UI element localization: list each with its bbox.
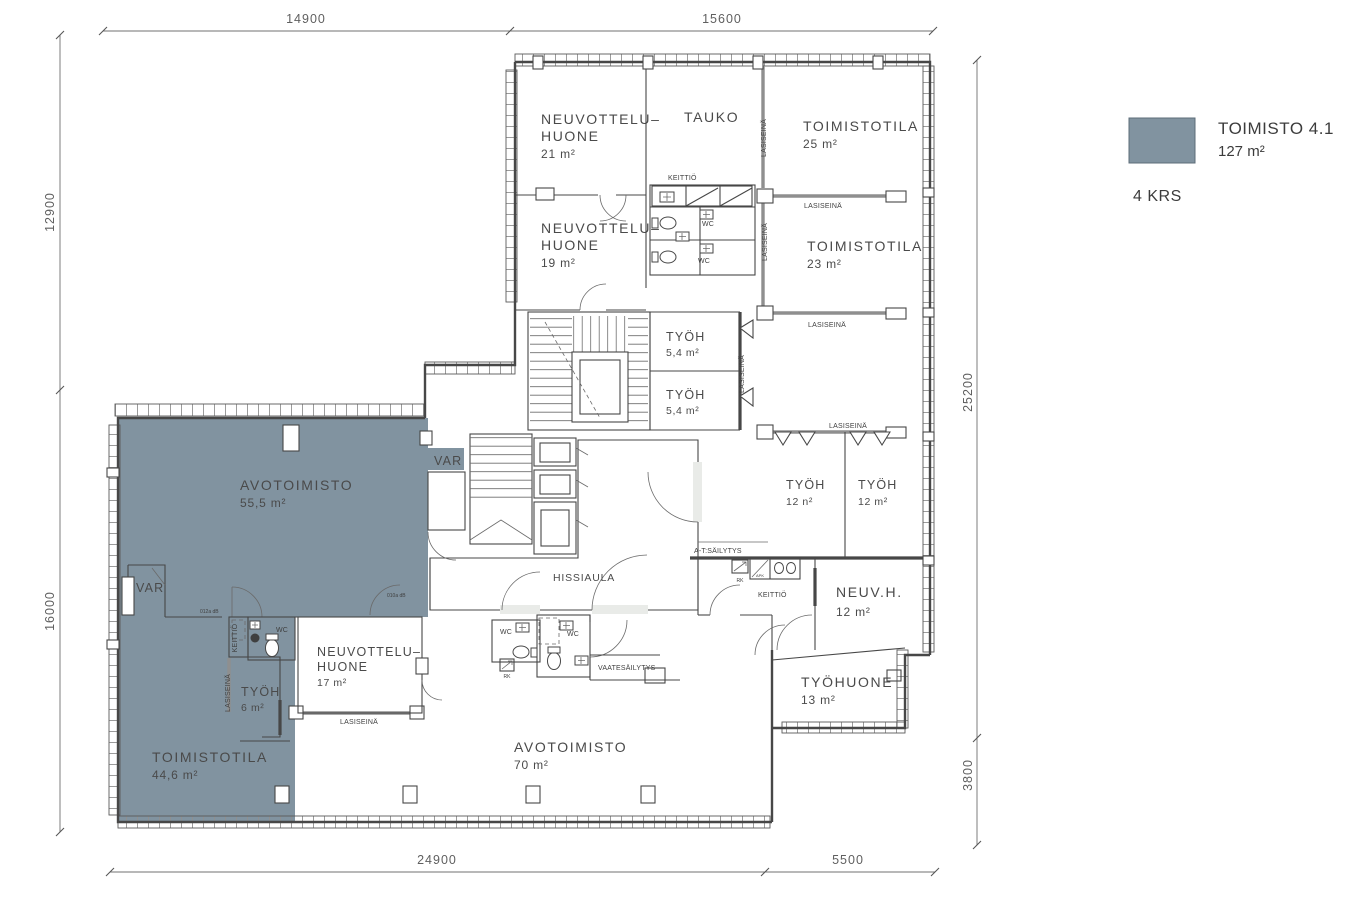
room-label-toimistotila-25: TOIMISTOTILA 25 m² bbox=[803, 118, 919, 151]
room-label-var-left: VAR bbox=[136, 581, 164, 595]
label-apk: APK bbox=[756, 573, 764, 578]
stairwell-upper bbox=[528, 312, 650, 430]
svg-text:25 m²: 25 m² bbox=[803, 137, 838, 151]
legend-swatch bbox=[1129, 118, 1195, 163]
svg-text:23 m²: 23 m² bbox=[807, 257, 842, 271]
svg-text:6 m²: 6 m² bbox=[241, 702, 264, 714]
room-label-var-right: VAR bbox=[434, 454, 462, 468]
label-lasiseina: LASISEINÄ bbox=[738, 355, 746, 393]
svg-text:13 m²: 13 m² bbox=[801, 693, 836, 707]
svg-text:44,6 m²: 44,6 m² bbox=[152, 768, 198, 782]
room-label-neuvottelu-19: NEUVOTTELU– HUONE 19 m² bbox=[541, 220, 661, 270]
room-name: HUONE bbox=[541, 128, 600, 144]
label-rk: RK bbox=[737, 578, 745, 584]
room-label-hissiaula: HISSIAULA bbox=[553, 572, 615, 584]
dim-top-left: 14900 bbox=[286, 12, 326, 26]
label-lasiseina: LASISEINÄ bbox=[804, 202, 842, 210]
label-keittio-right: KEITTIÖ bbox=[758, 591, 787, 599]
room-name: NEUVOTTELU– bbox=[541, 111, 661, 127]
room-label-tyohuone-13: TYÖHUONE 13 m² bbox=[801, 673, 893, 707]
svg-text:5,4 m²: 5,4 m² bbox=[666, 347, 699, 359]
dim-right-upper: 25200 bbox=[961, 372, 975, 412]
svg-text:17 m²: 17 m² bbox=[317, 677, 347, 689]
label-door-010a: 010a dB bbox=[387, 593, 406, 599]
dimension-left: 12900 16000 bbox=[43, 31, 64, 836]
room-area: 21 m² bbox=[541, 147, 576, 161]
svg-text:NEUV.H.: NEUV.H. bbox=[836, 584, 903, 600]
svg-text:5,4 m²: 5,4 m² bbox=[666, 405, 699, 417]
label-at-sailytys: A-T:SÄILYTYS bbox=[694, 547, 742, 555]
legend-floor: 4 KRS bbox=[1133, 188, 1182, 205]
svg-text:TYÖH: TYÖH bbox=[786, 478, 826, 492]
label-lasiseina: LASISEINÄ bbox=[340, 718, 378, 726]
floorplan-page: NEUVOTTELU– HUONE 21 m² TAUKO TOIMISTOTI… bbox=[0, 0, 1356, 917]
dim-right-lower: 3800 bbox=[961, 759, 975, 791]
room-label-neuv-h-12: NEUV.H. 12 m² bbox=[836, 584, 903, 619]
svg-text:TYÖHUONE: TYÖHUONE bbox=[801, 673, 893, 690]
dimension-top: 14900 15600 bbox=[99, 12, 937, 35]
wc-cluster-mid bbox=[492, 615, 680, 683]
label-wc: WC bbox=[698, 258, 710, 265]
label-wc: WC bbox=[500, 629, 512, 636]
room-label-tyoh-12-b: TYÖH 12 m² bbox=[858, 478, 898, 508]
label-wc: WC bbox=[567, 631, 579, 638]
label-lasiseina: LASISEINÄ bbox=[808, 321, 846, 329]
label-rk: RK bbox=[504, 674, 512, 680]
label-keittio-top: KEITTIÖ bbox=[668, 174, 697, 182]
room-label-avotoimisto-70: AVOTOIMISTO 70 m² bbox=[514, 739, 627, 772]
label-door-012a: 012a dB bbox=[200, 609, 219, 615]
svg-text:12 n²: 12 n² bbox=[786, 496, 813, 508]
floorplan-drawing: NEUVOTTELU– HUONE 21 m² TAUKO TOIMISTOTI… bbox=[0, 0, 1356, 917]
label-lasiseina: LASISEINÄ bbox=[761, 223, 769, 261]
svg-text:19 m²: 19 m² bbox=[541, 256, 576, 270]
elevator-core bbox=[470, 434, 588, 554]
room-label-tyoh-12-a: TYÖH 12 n² bbox=[786, 478, 826, 508]
svg-text:HUONE: HUONE bbox=[541, 237, 600, 253]
svg-text:AVOTOIMISTO: AVOTOIMISTO bbox=[514, 739, 627, 755]
dim-left-upper: 12900 bbox=[43, 192, 57, 232]
label-vaatesailytys: VAATESÄILYTYS bbox=[598, 664, 656, 672]
dim-top-right: 15600 bbox=[702, 12, 742, 26]
svg-text:70 m²: 70 m² bbox=[514, 758, 549, 772]
svg-text:TYÖH: TYÖH bbox=[858, 478, 898, 492]
svg-text:TOIMISTOTILA: TOIMISTOTILA bbox=[807, 238, 923, 254]
room-label-tyoh-54-a: TYÖH 5,4 m² bbox=[666, 330, 706, 359]
svg-text:AVOTOIMISTO: AVOTOIMISTO bbox=[240, 477, 353, 493]
label-lasiseina: LASISEINÄ bbox=[224, 674, 232, 712]
dimension-right: 25200 3800 bbox=[961, 56, 981, 849]
label-lasiseina: LASISEINÄ bbox=[760, 119, 768, 157]
svg-text:55,5 m²: 55,5 m² bbox=[240, 496, 286, 510]
svg-text:TYÖH: TYÖH bbox=[666, 330, 706, 344]
svg-text:NEUVOTTELU–: NEUVOTTELU– bbox=[317, 645, 421, 659]
svg-text:HUONE: HUONE bbox=[317, 660, 368, 674]
room-label-tauko: TAUKO bbox=[684, 109, 739, 125]
dimension-bottom: 24900 5500 bbox=[106, 853, 939, 876]
label-wc: WC bbox=[276, 627, 288, 634]
svg-text:TYÖH: TYÖH bbox=[666, 388, 706, 402]
legend-title: TOIMISTO 4.1 bbox=[1218, 119, 1334, 138]
dim-bottom-left: 24900 bbox=[417, 853, 457, 867]
legend: TOIMISTO 4.1 127 m² 4 KRS bbox=[1129, 118, 1334, 205]
svg-text:TOIMISTOTILA: TOIMISTOTILA bbox=[152, 749, 268, 765]
label-lasiseina: LASISEINÄ bbox=[829, 422, 867, 430]
room-label-tyoh-54-b: TYÖH 5,4 m² bbox=[666, 388, 706, 417]
svg-text:12 m²: 12 m² bbox=[858, 496, 888, 508]
label-keittio-left: KEITTIÖ bbox=[231, 623, 239, 652]
room-label-toimistotila-23: TOIMISTOTILA 23 m² bbox=[807, 238, 923, 271]
room-label-neuvottelu-21: NEUVOTTELU– HUONE 21 m² bbox=[541, 111, 661, 161]
svg-text:TYÖH: TYÖH bbox=[241, 685, 281, 699]
svg-text:TOIMISTOTILA: TOIMISTOTILA bbox=[803, 118, 919, 134]
label-wc: WC bbox=[702, 221, 714, 228]
dim-left-lower: 16000 bbox=[43, 591, 57, 631]
kitchen-right bbox=[732, 558, 800, 579]
legend-area: 127 m² bbox=[1218, 143, 1265, 160]
svg-text:NEUVOTTELU–: NEUVOTTELU– bbox=[541, 220, 661, 236]
dim-bottom-right: 5500 bbox=[832, 853, 864, 867]
room-label-neuvottelu-17: NEUVOTTELU– HUONE 17 m² bbox=[317, 645, 421, 689]
svg-text:12 m²: 12 m² bbox=[836, 605, 871, 619]
